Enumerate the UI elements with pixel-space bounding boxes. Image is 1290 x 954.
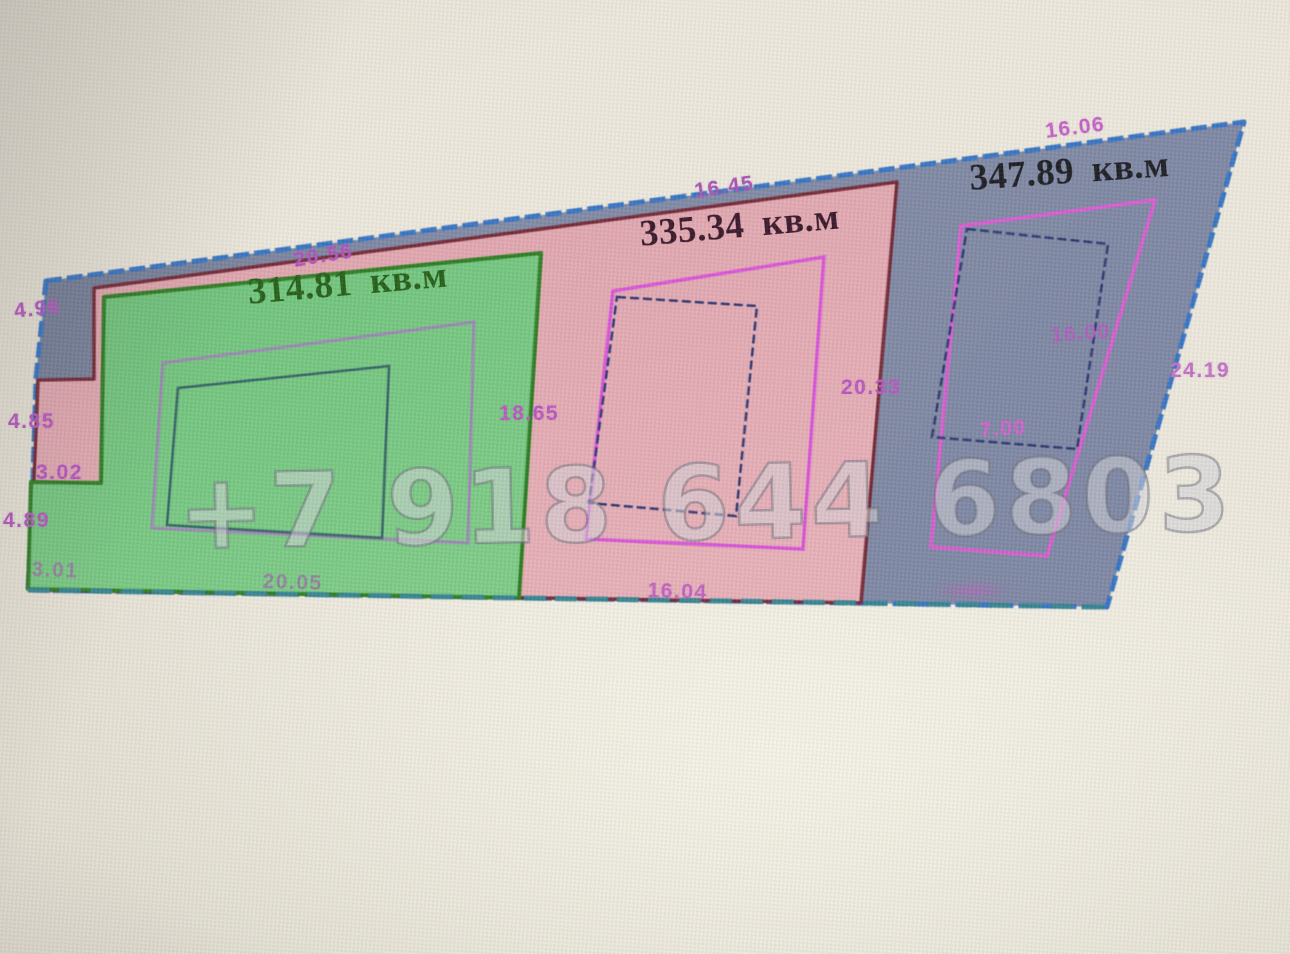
dim-gray-right: 24.19 bbox=[1170, 359, 1230, 383]
dim-green-right: 18.65 bbox=[499, 402, 559, 426]
dim-left-bottom: 3.01 bbox=[31, 558, 79, 584]
dim-notch-width: 3.02 bbox=[36, 461, 83, 485]
dim-left-lower: 4.89 bbox=[3, 509, 50, 533]
dim-pink-bottom: 16.04 bbox=[647, 579, 708, 605]
dim-green-bottom: 20.05 bbox=[262, 570, 323, 596]
photo-of-monitor-screen: 314.81 кв.м 335.34 кв.м 347.89 кв.м 4.96… bbox=[0, 0, 1290, 954]
phone-watermark: +7 918 644 6803 bbox=[177, 435, 1236, 573]
illegible-dimension-smudge bbox=[933, 582, 1013, 599]
dim-outer-left-top: 4.96 bbox=[13, 295, 62, 324]
dim-gray-inner-height: 16.00 bbox=[1050, 320, 1112, 348]
dim-pink-right: 20.33 bbox=[841, 376, 901, 400]
dim-left-upper: 4.85 bbox=[8, 410, 55, 434]
